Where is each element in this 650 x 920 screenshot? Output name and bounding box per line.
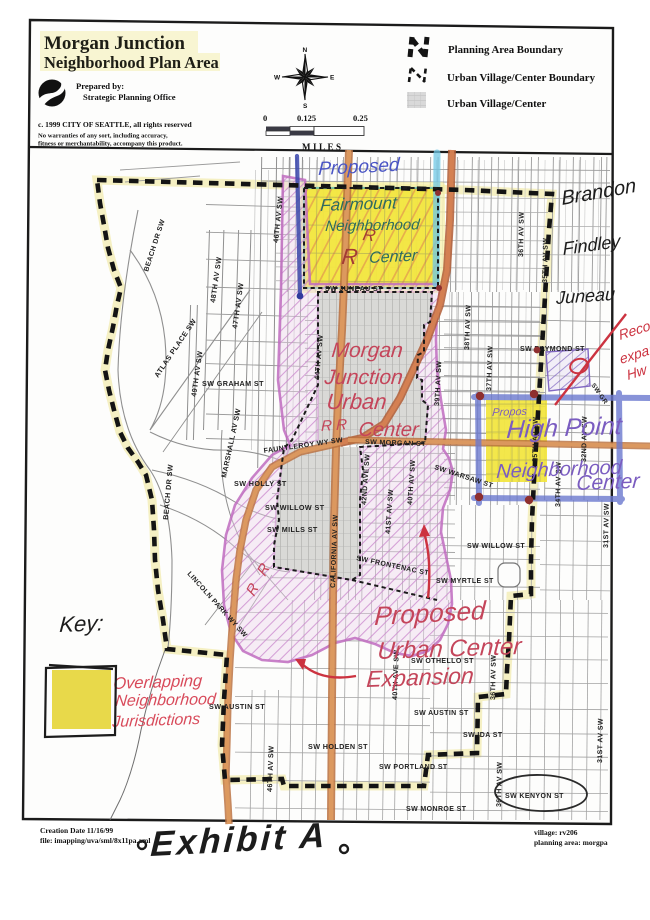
svg-text:N: N [303, 47, 308, 54]
svg-text:SW WILLOW ST: SW WILLOW ST [467, 543, 525, 550]
svg-text:31ST AV SW: 31ST AV SW [603, 503, 611, 548]
svg-text:46TH AV SW: 46TH AV SW [265, 745, 276, 792]
svg-text:Urban Center: Urban Center [377, 633, 524, 665]
svg-text:0.25: 0.25 [353, 113, 368, 123]
svg-text:Exhibit A: Exhibit A [150, 816, 329, 864]
svg-text:Morgan Junction: Morgan Junction [44, 33, 185, 54]
svg-text:Proposed: Proposed [374, 595, 488, 631]
svg-text:Urban: Urban [325, 389, 388, 414]
svg-text:village: rv206: village: rv206 [534, 828, 578, 837]
svg-text:MILES: MILES [302, 142, 344, 152]
svg-text:Neighborhood: Neighborhood [115, 690, 218, 710]
svg-text:SW MYRTLE ST: SW MYRTLE ST [436, 578, 494, 585]
svg-text:Jurisdictions: Jurisdictions [111, 710, 201, 731]
svg-text:S: S [303, 103, 308, 110]
svg-text:SW JUNEAU ST: SW JUNEAU ST [325, 286, 383, 293]
svg-text:SW MONROE ST: SW MONROE ST [406, 806, 467, 813]
svg-text:0.125: 0.125 [297, 113, 316, 123]
svg-text:31ST AV SW: 31ST AV SW [597, 718, 605, 763]
svg-text:SW MILLS ST: SW MILLS ST [267, 525, 318, 534]
svg-text:Expansion: Expansion [366, 662, 475, 692]
svg-text:SW PORTLAND ST: SW PORTLAND ST [379, 764, 448, 771]
svg-text:36TH AV SW: 36TH AV SW [518, 212, 526, 257]
svg-text:Juneau: Juneau [555, 284, 616, 308]
svg-text:file: imapping/uva/sml/8x11pa.: file: imapping/uva/sml/8x11pa.aml [40, 836, 150, 845]
svg-text:SW AUSTIN ST: SW AUSTIN ST [209, 702, 265, 711]
svg-text:Morgan: Morgan [330, 339, 404, 362]
svg-text:High Point: High Point [506, 412, 624, 444]
svg-text:Proposed: Proposed [318, 155, 402, 180]
svg-text:Urban Village/Center: Urban Village/Center [447, 98, 546, 110]
svg-text:Planning Area Boundary: Planning Area Boundary [448, 44, 564, 56]
svg-text:Fairmount: Fairmount [320, 193, 399, 215]
svg-text:expan: expan [618, 339, 650, 367]
svg-text:SW HOLDEN ST: SW HOLDEN ST [308, 742, 368, 751]
svg-text:Center: Center [576, 470, 642, 495]
svg-text:SW GRAHAM ST: SW GRAHAM ST [202, 379, 264, 388]
svg-text:W: W [274, 75, 281, 82]
svg-text:R R: R R [321, 416, 347, 435]
svg-text:Center: Center [357, 419, 421, 441]
svg-text:SW WILLOW ST: SW WILLOW ST [265, 503, 325, 512]
svg-text:Center: Center [369, 246, 419, 267]
svg-text:36TH AV SW: 36TH AV SW [490, 655, 498, 700]
svg-text:35TH AV SW: 35TH AV SW [542, 238, 550, 283]
svg-text:fitness or merchantability, ac: fitness or merchantability, accompany th… [38, 141, 183, 148]
svg-text:R: R [340, 244, 359, 269]
svg-text:E: E [330, 75, 335, 82]
svg-text:SW AUSTIN ST: SW AUSTIN ST [414, 710, 469, 717]
svg-text:c. 1999 CITY OF SEATTLE, all r: c. 1999 CITY OF SEATTLE, all rights rese… [38, 120, 193, 129]
svg-text:Overlapping: Overlapping [113, 671, 204, 693]
svg-text:SW KENYON ST: SW KENYON ST [505, 793, 564, 800]
svg-text:Neighborhood Plan Area: Neighborhood Plan Area [44, 53, 219, 72]
svg-text:SW RAYMOND ST: SW RAYMOND ST [520, 346, 585, 353]
svg-text:Prepared by:: Prepared by: [76, 81, 124, 91]
svg-text:Creation Date 11/16/99: Creation Date 11/16/99 [40, 826, 113, 835]
svg-text:Junction: Junction [322, 366, 404, 389]
svg-text:0: 0 [263, 113, 267, 123]
svg-text:Urban Village/Center Boundary: Urban Village/Center Boundary [447, 72, 596, 84]
svg-text:planning area: morgpa: planning area: morgpa [534, 838, 608, 847]
svg-text:No warranties of any sort, inc: No warranties of any sort, including acc… [38, 133, 168, 140]
svg-text:36TH AV SW: 36TH AV SW [496, 762, 504, 807]
svg-text:Key:: Key: [59, 610, 105, 637]
svg-text:SW IDA ST: SW IDA ST [463, 732, 503, 739]
svg-text:SW HOLLY ST: SW HOLLY ST [234, 479, 287, 488]
svg-text:Strategic Planning Office: Strategic Planning Office [83, 92, 176, 102]
